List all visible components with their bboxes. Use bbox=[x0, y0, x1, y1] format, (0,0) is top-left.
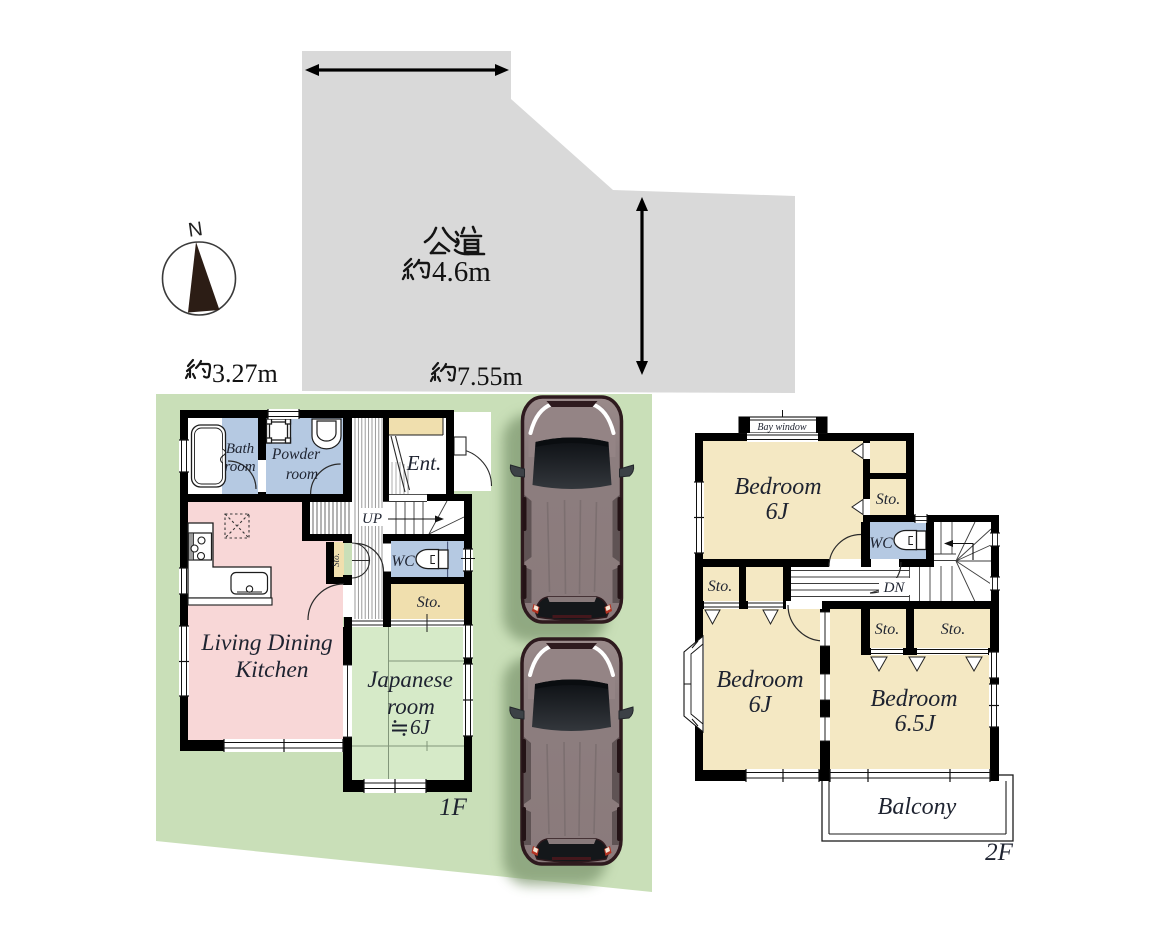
svg-text:4.6m: 4.6m bbox=[432, 256, 491, 288]
svg-text:Powder: Powder bbox=[271, 446, 321, 463]
svg-text:room: room bbox=[224, 459, 255, 475]
svg-text:room: room bbox=[286, 466, 318, 483]
svg-text:7.55m: 7.55m bbox=[457, 362, 523, 391]
svg-text:Sto.: Sto. bbox=[876, 491, 900, 508]
svg-text:2F: 2F bbox=[985, 839, 1014, 866]
svg-text:Balcony: Balcony bbox=[878, 794, 957, 820]
svg-text:Japanese: Japanese bbox=[367, 667, 453, 692]
svg-text:Living Dining: Living Dining bbox=[200, 630, 332, 656]
svg-text:Bath: Bath bbox=[226, 441, 254, 457]
svg-text:N: N bbox=[187, 218, 204, 242]
svg-text:Sto.: Sto. bbox=[417, 594, 441, 611]
svg-text:Sto.: Sto. bbox=[941, 621, 965, 638]
svg-text:Bedroom: Bedroom bbox=[734, 474, 821, 500]
svg-text:6.5J: 6.5J bbox=[895, 711, 937, 737]
svg-text:6J: 6J bbox=[766, 499, 790, 525]
svg-text:1F: 1F bbox=[439, 794, 468, 821]
svg-text:Sto.: Sto. bbox=[708, 578, 732, 595]
svg-text:6J: 6J bbox=[749, 692, 773, 718]
svg-text:Sto.: Sto. bbox=[331, 553, 341, 567]
svg-text:3.27m: 3.27m bbox=[212, 359, 278, 388]
svg-text:WC: WC bbox=[391, 553, 415, 570]
svg-text:UP: UP bbox=[362, 511, 382, 527]
svg-text:DN: DN bbox=[883, 580, 906, 596]
svg-text:Bedroom: Bedroom bbox=[870, 686, 957, 712]
svg-text:Ent.: Ent. bbox=[406, 451, 441, 475]
svg-text:WC: WC bbox=[869, 535, 893, 552]
svg-text:Bedroom: Bedroom bbox=[716, 667, 803, 693]
svg-text:Sto.: Sto. bbox=[875, 621, 899, 638]
svg-text:Bay window: Bay window bbox=[757, 422, 806, 433]
svg-text:6J: 6J bbox=[410, 715, 432, 739]
svg-text:Kitchen: Kitchen bbox=[234, 657, 308, 683]
